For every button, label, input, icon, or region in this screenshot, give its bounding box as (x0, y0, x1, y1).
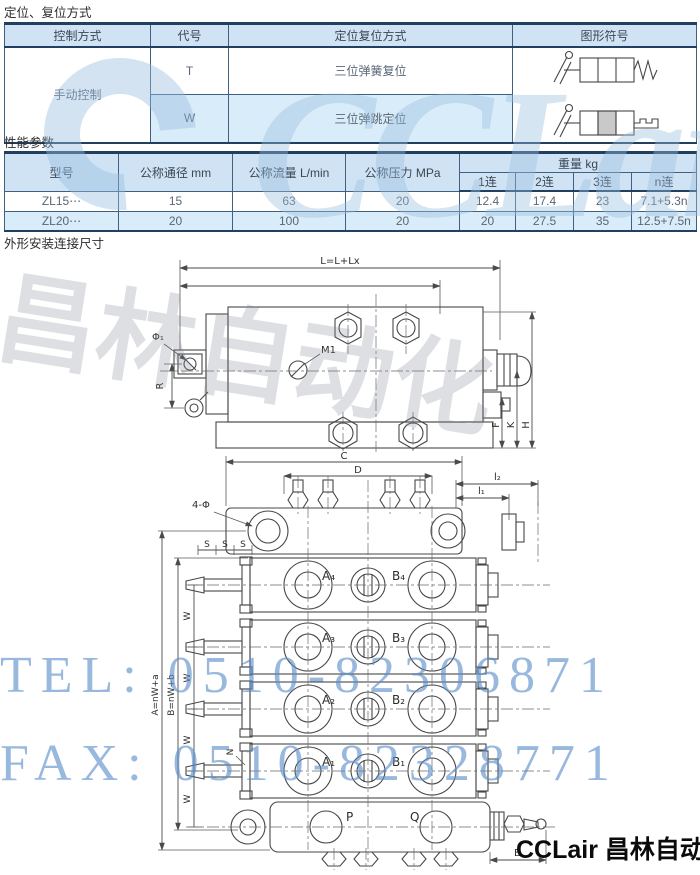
detent-valve-icon (546, 101, 664, 142)
header-weight-n: n连 (632, 173, 697, 192)
dim-label-phi1: Φ₁ (152, 332, 164, 343)
dim-label-f: F (491, 422, 502, 428)
port-label: B₂ (392, 693, 405, 707)
header-weight-3: 3连 (574, 173, 632, 192)
dim-label-l2: l₂ (494, 472, 501, 483)
spring-return-valve-icon (546, 48, 664, 89)
section-title-performance: 性能参数 (4, 132, 54, 151)
header-graphic-symbol: 图形符号 (513, 24, 697, 47)
cell-weight-2: 27.5 (516, 211, 574, 231)
cell-pressure: 20 (346, 211, 460, 231)
section-title-dimensions: 外形安装连接尺寸 (4, 233, 104, 252)
section-title-positioning: 定位、复位方式 (4, 2, 92, 21)
port-label-q: Q (410, 810, 419, 824)
cell-weight-n: 7.1+5.3n (632, 191, 697, 211)
dim-label-overall-length: L=L+Lx (320, 256, 359, 267)
cell-flow: 100 (233, 211, 346, 231)
port-label: B₄ (392, 569, 405, 583)
header-control-method: 控制方式 (5, 24, 151, 47)
dim-label-r: R (155, 382, 166, 389)
dim-label-m1: M1 (321, 345, 336, 356)
positioning-table: 控制方式 代号 定位复位方式 图形符号 手动控制 T 三位弹簧复位 (4, 22, 697, 144)
cell-model: ZL20⋯ (5, 211, 119, 231)
dim-label-s: S (222, 540, 228, 550)
dim-label-mount-holes: 4-Φ (192, 500, 210, 511)
dim-label-d: D (354, 465, 362, 476)
dim-label-h: H (521, 421, 532, 429)
dim-label-w: W (183, 794, 193, 803)
cell-model: ZL15⋯ (5, 191, 119, 211)
footer-brand: CCLair 昌林自动化 (516, 830, 700, 866)
header-reset-method: 定位复位方式 (229, 24, 513, 47)
port-label: B₃ (392, 631, 405, 645)
cell-weight-2: 17.4 (516, 191, 574, 211)
dim-label-w: W (183, 673, 193, 682)
cell-control-method: 手动控制 (5, 47, 151, 143)
cell-diameter: 20 (119, 211, 233, 231)
dim-label-l1: l₁ (478, 486, 485, 497)
cell-symbols (513, 47, 697, 143)
header-weight-1: 1连 (460, 173, 516, 192)
dim-label-c: C (341, 451, 348, 462)
cell-flow: 63 (233, 191, 346, 211)
header-model: 型号 (5, 153, 119, 192)
table-row: ZL15⋯ 15 63 20 12.4 17.4 23 7.1+5.3n (5, 191, 697, 211)
header-pressure: 公称压力 MPa (346, 153, 460, 192)
port-label: B₁ (392, 755, 405, 769)
dim-label-s: S (204, 540, 210, 550)
cell-weight-1: 12.4 (460, 191, 516, 211)
cell-method-w: 三位弹跳定位 (229, 95, 513, 143)
dim-label-a-formula: A=nW+a (151, 674, 161, 715)
performance-table: 型号 公称通径 mm 公称流量 L/min 公称压力 MPa 重量 kg 1连 … (4, 151, 697, 232)
cell-method-t: 三位弹簧复位 (229, 47, 513, 95)
dim-label-k: K (506, 421, 517, 428)
port-label: A₃ (322, 631, 335, 645)
cell-code-w: W (151, 95, 229, 143)
cell-code-t: T (151, 47, 229, 95)
port-label-p: P (346, 810, 353, 824)
dim-label-b-formula: B=nW+b (167, 674, 177, 716)
side-view-drawing: L=L+Lx M1 Φ₁ R F K H (148, 252, 538, 457)
cell-weight-3: 35 (574, 211, 632, 231)
table-row: 手动控制 T 三位弹簧复位 (5, 47, 697, 95)
top-view-drawing: C D 4-Φ l₂ l₁ (146, 450, 566, 875)
dim-label-w: W (183, 611, 193, 620)
header-code: 代号 (151, 24, 229, 47)
header-weight-2: 2连 (516, 173, 574, 192)
header-diameter: 公称通径 mm (119, 153, 233, 192)
dim-label-s: S (240, 540, 246, 550)
header-weight-group: 重量 kg (460, 153, 697, 173)
cell-diameter: 15 (119, 191, 233, 211)
performance-header-row: 型号 公称通径 mm 公称流量 L/min 公称压力 MPa 重量 kg (5, 153, 697, 173)
dim-label-n: N (226, 749, 236, 756)
dim-label-w: W (183, 735, 193, 744)
cell-pressure: 20 (346, 191, 460, 211)
port-label: A₂ (322, 693, 335, 707)
positioning-header-row: 控制方式 代号 定位复位方式 图形符号 (5, 24, 697, 47)
cell-weight-1: 20 (460, 211, 516, 231)
header-flow: 公称流量 L/min (233, 153, 346, 192)
table-row: ZL20⋯ 20 100 20 20 27.5 35 12.5+7.5n (5, 211, 697, 231)
port-label: A₄ (322, 569, 335, 583)
port-label: A₁ (322, 755, 335, 769)
cell-weight-3: 23 (574, 191, 632, 211)
cell-weight-n: 12.5+7.5n (632, 211, 697, 231)
